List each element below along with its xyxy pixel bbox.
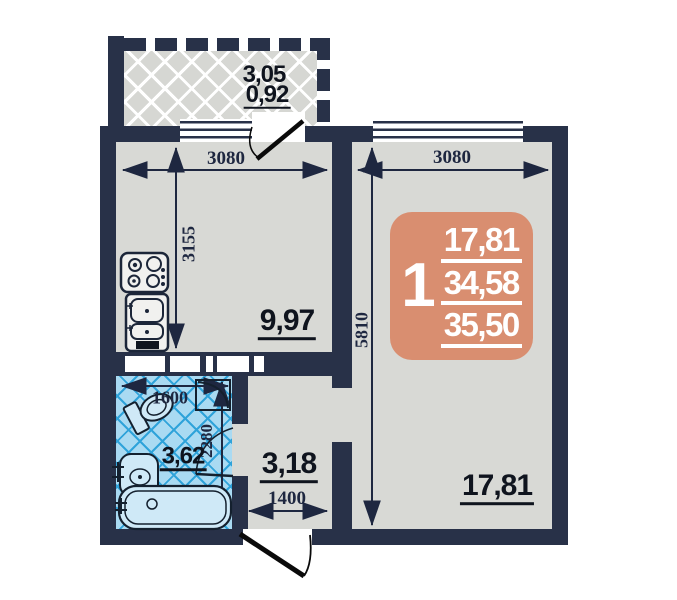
living-depth-dim-label: 5810 (352, 312, 373, 348)
wall-kitchen-living-divider (332, 142, 352, 388)
vent-niche (254, 356, 264, 372)
vent-niche (217, 356, 249, 372)
bathroom-area-label: 3,62 (160, 444, 207, 471)
balcony-area-reduced-label: 0,92 (244, 83, 291, 109)
wall-bathroom-right-upper (232, 376, 248, 424)
window-living-room (373, 119, 523, 142)
hallway-width-dim-label: 1400 (268, 488, 306, 510)
vent-niche (206, 356, 213, 372)
balcony-railing-top (124, 38, 330, 51)
wall-hall-living-divider-lower (332, 442, 352, 529)
floor-plan: 1 17,81 34,58 35,50 3,05 0,92 3080 3155 … (0, 0, 677, 600)
wall-left (100, 126, 116, 545)
total-area-value: 35,50 (441, 307, 522, 348)
kitchen-depth-dim-label: 3155 (179, 226, 200, 262)
wall-bottom-left (100, 529, 243, 545)
room-count: 1 (401, 255, 433, 317)
living-area-value: 17,81 (441, 222, 522, 263)
wall-bathroom-right-lower (232, 476, 248, 529)
bathroom-width-dim-label: 1600 (152, 388, 188, 409)
vent-niche (125, 356, 165, 372)
area-summary: 17,81 34,58 35,50 (441, 222, 522, 350)
balcony-railing-right (317, 38, 330, 126)
hallway-area-label: 3,18 (260, 449, 318, 483)
wall-bottom-right (312, 529, 568, 545)
window-kitchen (180, 119, 252, 142)
door-opening-balcony (252, 112, 305, 142)
wall-top-middle (305, 126, 375, 142)
kitchen-area-label: 9,97 (258, 306, 316, 340)
wall-balcony-left (108, 36, 124, 126)
usable-area-value: 34,58 (441, 265, 522, 306)
apartment-info-badge: 1 17,81 34,58 35,50 (390, 212, 533, 360)
kitchen-width-dim-label: 3080 (207, 148, 245, 170)
wall-right (552, 126, 568, 545)
living-width-dim-label: 3080 (433, 147, 471, 169)
living-area-label: 17,81 (460, 471, 534, 505)
door-opening-entrance (243, 529, 312, 545)
vent-niche (170, 356, 200, 372)
